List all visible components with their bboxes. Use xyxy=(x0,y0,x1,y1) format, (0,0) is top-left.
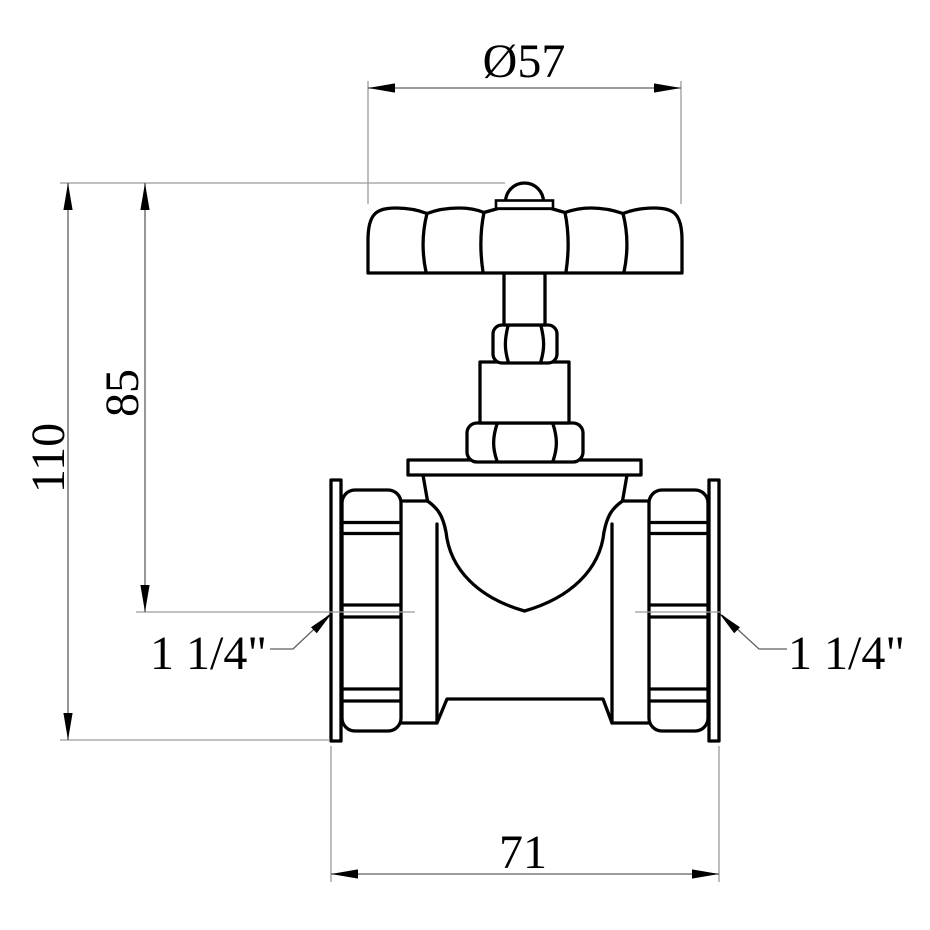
union-nut-right xyxy=(649,490,708,731)
valve-technical-drawing: Ø57 110 85 71 1 1/4" xyxy=(0,0,930,930)
port-left-label: 1 1/4" xyxy=(150,627,267,680)
callout-port-right: 1 1/4" xyxy=(719,613,905,680)
arrowhead-right-icon xyxy=(692,869,719,878)
leader-arrowhead-icon xyxy=(311,613,332,633)
bonnet-side-left xyxy=(423,475,428,501)
leader-line xyxy=(270,615,329,649)
dimension-total-height: 110 xyxy=(22,183,75,740)
dimension-face-to-face: 71 xyxy=(331,826,719,879)
leader-arrowhead-icon xyxy=(719,613,740,633)
left-connection xyxy=(331,480,401,741)
arrowhead-down-icon xyxy=(140,585,149,612)
dimension-handwheel-diameter: Ø57 xyxy=(368,35,681,93)
arrowhead-left-icon xyxy=(331,869,358,878)
bonnet-nut xyxy=(467,423,583,462)
packing-nut xyxy=(493,325,557,363)
gland-body xyxy=(480,362,569,423)
dimension-center-height: 85 xyxy=(96,183,150,612)
handwheel-dome-cap xyxy=(506,183,544,202)
port-right-label: 1 1/4" xyxy=(788,627,905,680)
handwheel-diameter-label: Ø57 xyxy=(483,35,566,88)
handwheel xyxy=(368,208,682,273)
leader-line xyxy=(722,615,787,649)
valve-stem xyxy=(504,273,545,325)
bonnet-side-right xyxy=(623,475,628,501)
stem-assembly xyxy=(467,273,583,462)
end-flange-right xyxy=(709,480,719,741)
technical-drawing-page: Ø57 110 85 71 1 1/4" xyxy=(0,0,930,930)
end-flange-left xyxy=(331,480,341,741)
total-height-label: 110 xyxy=(22,423,75,493)
callout-port-left: 1 1/4" xyxy=(150,613,332,680)
arrowhead-left-icon xyxy=(368,83,395,92)
handwheel-cap-washer xyxy=(496,201,553,209)
handwheel-assembly xyxy=(368,183,682,273)
right-connection xyxy=(649,480,719,741)
face-to-face-label: 71 xyxy=(499,826,547,879)
union-nut-left xyxy=(342,490,401,731)
arrowhead-up-icon xyxy=(63,183,72,210)
body-seat-curve xyxy=(428,501,623,611)
arrowhead-up-icon xyxy=(140,183,149,210)
center-height-label: 85 xyxy=(96,369,149,417)
arrowhead-right-icon xyxy=(654,83,681,92)
arrowhead-down-icon xyxy=(63,713,72,740)
valve-body xyxy=(401,460,649,723)
